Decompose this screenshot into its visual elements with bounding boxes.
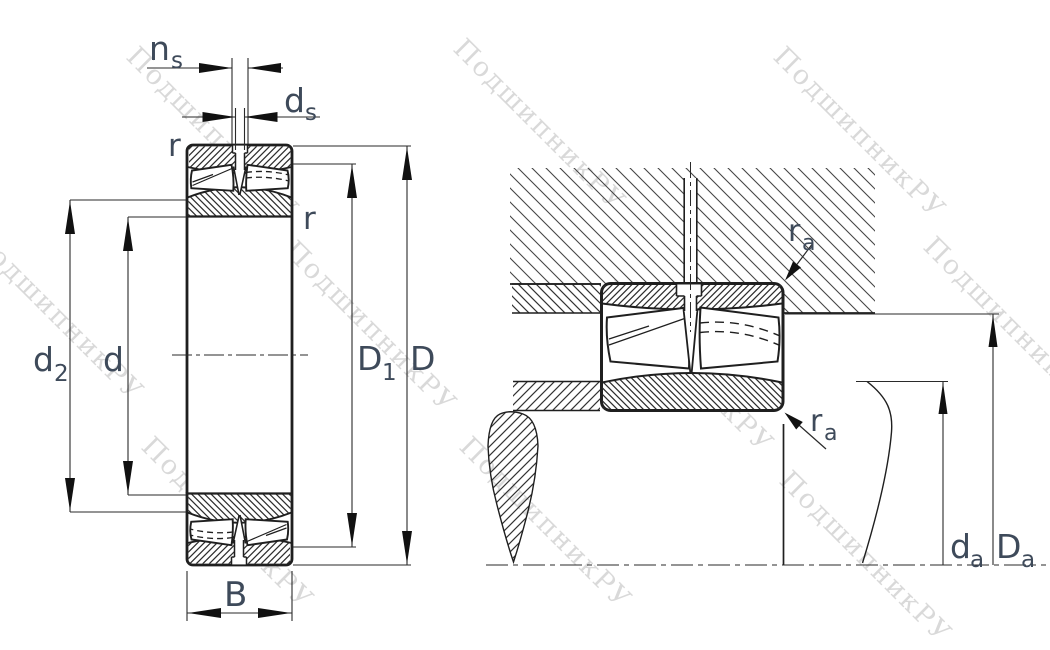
d-arrow-down bbox=[123, 461, 133, 494]
label-D: D bbox=[410, 339, 435, 378]
label-r-right: r bbox=[303, 201, 316, 237]
label-d: d bbox=[103, 340, 124, 379]
label-ra-upper-sub: a bbox=[802, 231, 815, 256]
left-bearing-bottom-section bbox=[188, 494, 292, 565]
sleeve-hatch bbox=[513, 382, 600, 411]
d-arrow-up bbox=[123, 218, 133, 251]
label-D1-sub: 1 bbox=[382, 360, 397, 386]
label-ra-lower: r bbox=[810, 404, 823, 439]
B-arrow-left bbox=[188, 608, 221, 618]
ds-arrow-left bbox=[245, 112, 278, 122]
label-da: d bbox=[950, 527, 971, 566]
right-roller-left bbox=[607, 308, 690, 369]
watermark-text: ПодшипникРУ bbox=[278, 235, 463, 420]
bearing-drawing-canvas: ПодшипникРУ ПодшипникРУ ПодшипникРУ Подш… bbox=[0, 0, 1050, 650]
right-roller-right bbox=[700, 308, 780, 369]
d2-arrow-down bbox=[65, 478, 75, 511]
ra-lower-arrow bbox=[785, 413, 803, 430]
sleeve-leaf-profile bbox=[488, 412, 538, 562]
groove-fill bbox=[232, 557, 247, 564]
label-d2: d bbox=[33, 340, 54, 379]
ns-extension-lines bbox=[232, 58, 248, 144]
da-arrow-up bbox=[939, 383, 948, 415]
ns-arrow-left bbox=[248, 63, 281, 73]
label-r-top-left: r bbox=[168, 128, 181, 164]
oil-hole-fill bbox=[235, 541, 244, 558]
cover-ring-hatch bbox=[512, 285, 601, 314]
watermark-text: ПодшипникРУ bbox=[773, 465, 958, 650]
label-ns: n bbox=[149, 29, 170, 68]
D-arrow-down bbox=[402, 531, 412, 564]
label-ra-upper: r bbox=[788, 214, 801, 249]
technical-drawing: ПодшипникРУ ПодшипникРУ ПодшипникРУ Подш… bbox=[0, 0, 1050, 650]
D1-arrow-down bbox=[347, 513, 357, 546]
watermark-layer: ПодшипникРУ ПодшипникРУ ПодшипникРУ Подш… bbox=[0, 33, 1050, 650]
label-ds-sub: s bbox=[305, 100, 317, 126]
right-groove-fill bbox=[677, 285, 702, 297]
label-ra-lower-sub: a bbox=[824, 421, 837, 446]
label-ns-sub: s bbox=[171, 48, 183, 74]
label-da-sub: a bbox=[970, 547, 984, 573]
watermark-text: ПодшипникРУ bbox=[917, 231, 1050, 416]
label-B: B bbox=[224, 575, 247, 615]
label-D1: D bbox=[357, 339, 382, 378]
D-arrow-up bbox=[402, 147, 412, 180]
oil-hole-fill bbox=[236, 152, 245, 169]
ns-arrow-right bbox=[199, 63, 232, 73]
right-figure-mounting bbox=[486, 162, 1046, 565]
groove-fill bbox=[233, 146, 248, 153]
left-figure-bearing-section bbox=[172, 145, 308, 565]
d2-arrow-up bbox=[65, 201, 75, 234]
B-arrow-right bbox=[258, 608, 291, 618]
watermark-text: ПодшипникРУ bbox=[453, 431, 638, 616]
label-Da-sub: a bbox=[1021, 547, 1035, 573]
label-d2-sub: 2 bbox=[54, 361, 69, 387]
label-Da: D bbox=[996, 527, 1021, 566]
D1-arrow-up bbox=[347, 165, 357, 198]
label-ds: d bbox=[284, 81, 305, 120]
left-bearing-top-section bbox=[188, 146, 292, 217]
